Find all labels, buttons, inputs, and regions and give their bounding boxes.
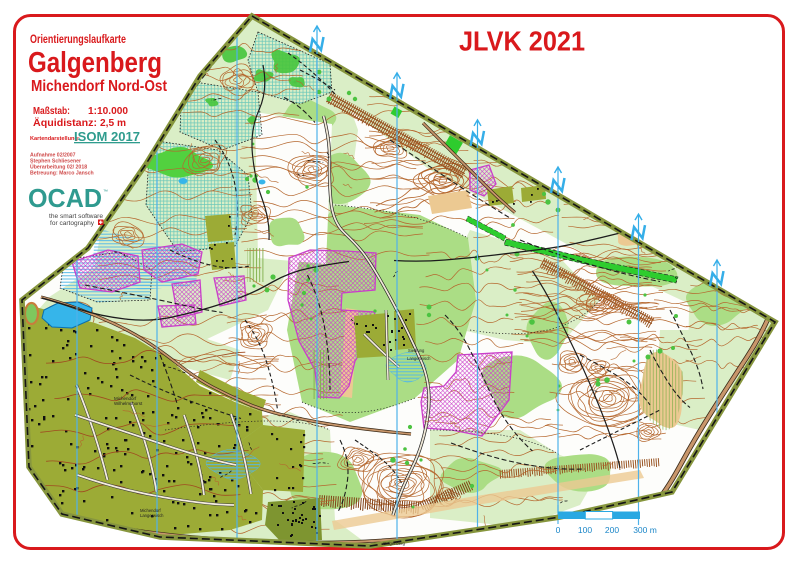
svg-text:OCAD: OCAD <box>28 183 102 213</box>
svg-text:Langerwisch: Langerwisch <box>140 513 164 518</box>
svg-text:Langerwisch: Langerwisch <box>407 356 431 361</box>
svg-text:100: 100 <box>578 525 592 535</box>
svg-text:Siedlung: Siedlung <box>408 348 425 353</box>
svg-text:Überarbeitung 02/ 2018: Überarbeitung 02/ 2018 <box>30 164 87 171</box>
svg-text:Betreuung: Marco Jansch: Betreuung: Marco Jansch <box>30 171 94 177</box>
svg-text:Michendorf Nord-Ost: Michendorf Nord-Ost <box>31 78 168 95</box>
svg-text:Galgenberg: Galgenberg <box>383 541 406 546</box>
svg-text:300 m: 300 m <box>633 525 657 535</box>
svg-text:JLVK 2021: JLVK 2021 <box>459 26 585 57</box>
svg-text:™: ™ <box>103 189 108 195</box>
svg-text:Galgenberg: Galgenberg <box>28 47 162 79</box>
svg-text:0: 0 <box>556 525 561 535</box>
svg-text:Äquidistanz:: Äquidistanz: <box>33 116 97 129</box>
svg-text:for cartography: for cartography <box>50 220 95 227</box>
svg-text:200: 200 <box>605 525 619 535</box>
svg-text:Orientierungslaufkarte: Orientierungslaufkarte <box>30 34 126 46</box>
svg-text:Maßstab:: Maßstab: <box>33 105 70 117</box>
svg-text:the smart software: the smart software <box>49 213 104 220</box>
svg-text:Wilhelmshorst: Wilhelmshorst <box>114 401 143 406</box>
svg-text:Kartendarstellung:: Kartendarstellung: <box>30 136 80 142</box>
svg-text:ISOM 2017: ISOM 2017 <box>74 129 140 144</box>
svg-text:1:10.000: 1:10.000 <box>88 105 128 117</box>
svg-text:2,5 m: 2,5 m <box>100 117 126 129</box>
